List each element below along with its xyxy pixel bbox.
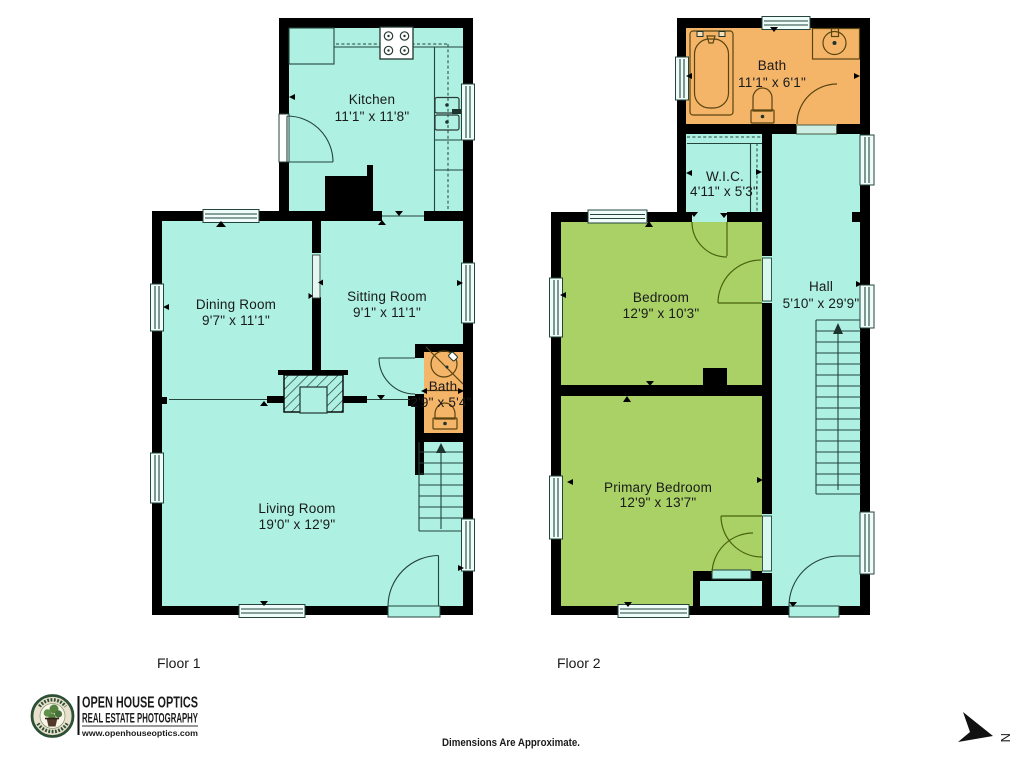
svg-text:Floor 2: Floor 2: [557, 655, 601, 671]
svg-text:Floor 1: Floor 1: [157, 655, 201, 671]
svg-text:Dimensions Are Approximate.: Dimensions Are Approximate.: [442, 737, 580, 749]
svg-text:Dining Room: Dining Room: [196, 297, 276, 312]
svg-text:N: N: [998, 733, 1013, 742]
svg-text:Hall: Hall: [809, 279, 833, 294]
svg-text:12'9" x 10'3": 12'9" x 10'3": [623, 306, 700, 321]
svg-text:Living Room: Living Room: [258, 501, 335, 516]
svg-text:19'0" x 12'9": 19'0" x 12'9": [259, 517, 336, 532]
svg-text:www.openhouseoptics.com: www.openhouseoptics.com: [81, 728, 198, 738]
svg-text:OPEN HOUSE OPTICS: OPEN HOUSE OPTICS: [82, 695, 198, 712]
svg-text:Sitting Room: Sitting Room: [347, 289, 427, 304]
svg-text:Bath: Bath: [429, 379, 458, 394]
svg-text:9'1" x 11'1": 9'1" x 11'1": [353, 305, 421, 320]
svg-text:Bath: Bath: [758, 58, 787, 73]
svg-text:REAL ESTATE PHOTOGRAPHY: REAL ESTATE PHOTOGRAPHY: [82, 711, 198, 726]
svg-text:9'7" x 11'1": 9'7" x 11'1": [202, 313, 270, 328]
svg-text:W.I.C.: W.I.C.: [706, 169, 744, 184]
svg-text:11'1" x 11'8": 11'1" x 11'8": [335, 109, 410, 124]
svg-text:Kitchen: Kitchen: [349, 92, 395, 107]
svg-text:11'1" x 6'1": 11'1" x 6'1": [738, 75, 806, 90]
svg-text:Bedroom: Bedroom: [633, 290, 689, 305]
svg-text:4'11" x 5'3": 4'11" x 5'3": [690, 184, 758, 199]
svg-text:2'9" x 5'4": 2'9" x 5'4": [410, 395, 471, 410]
svg-text:Primary Bedroom: Primary Bedroom: [604, 480, 712, 495]
svg-text:5'10" x 29'9": 5'10" x 29'9": [783, 296, 860, 311]
svg-text:12'9" x 13'7": 12'9" x 13'7": [620, 495, 697, 510]
